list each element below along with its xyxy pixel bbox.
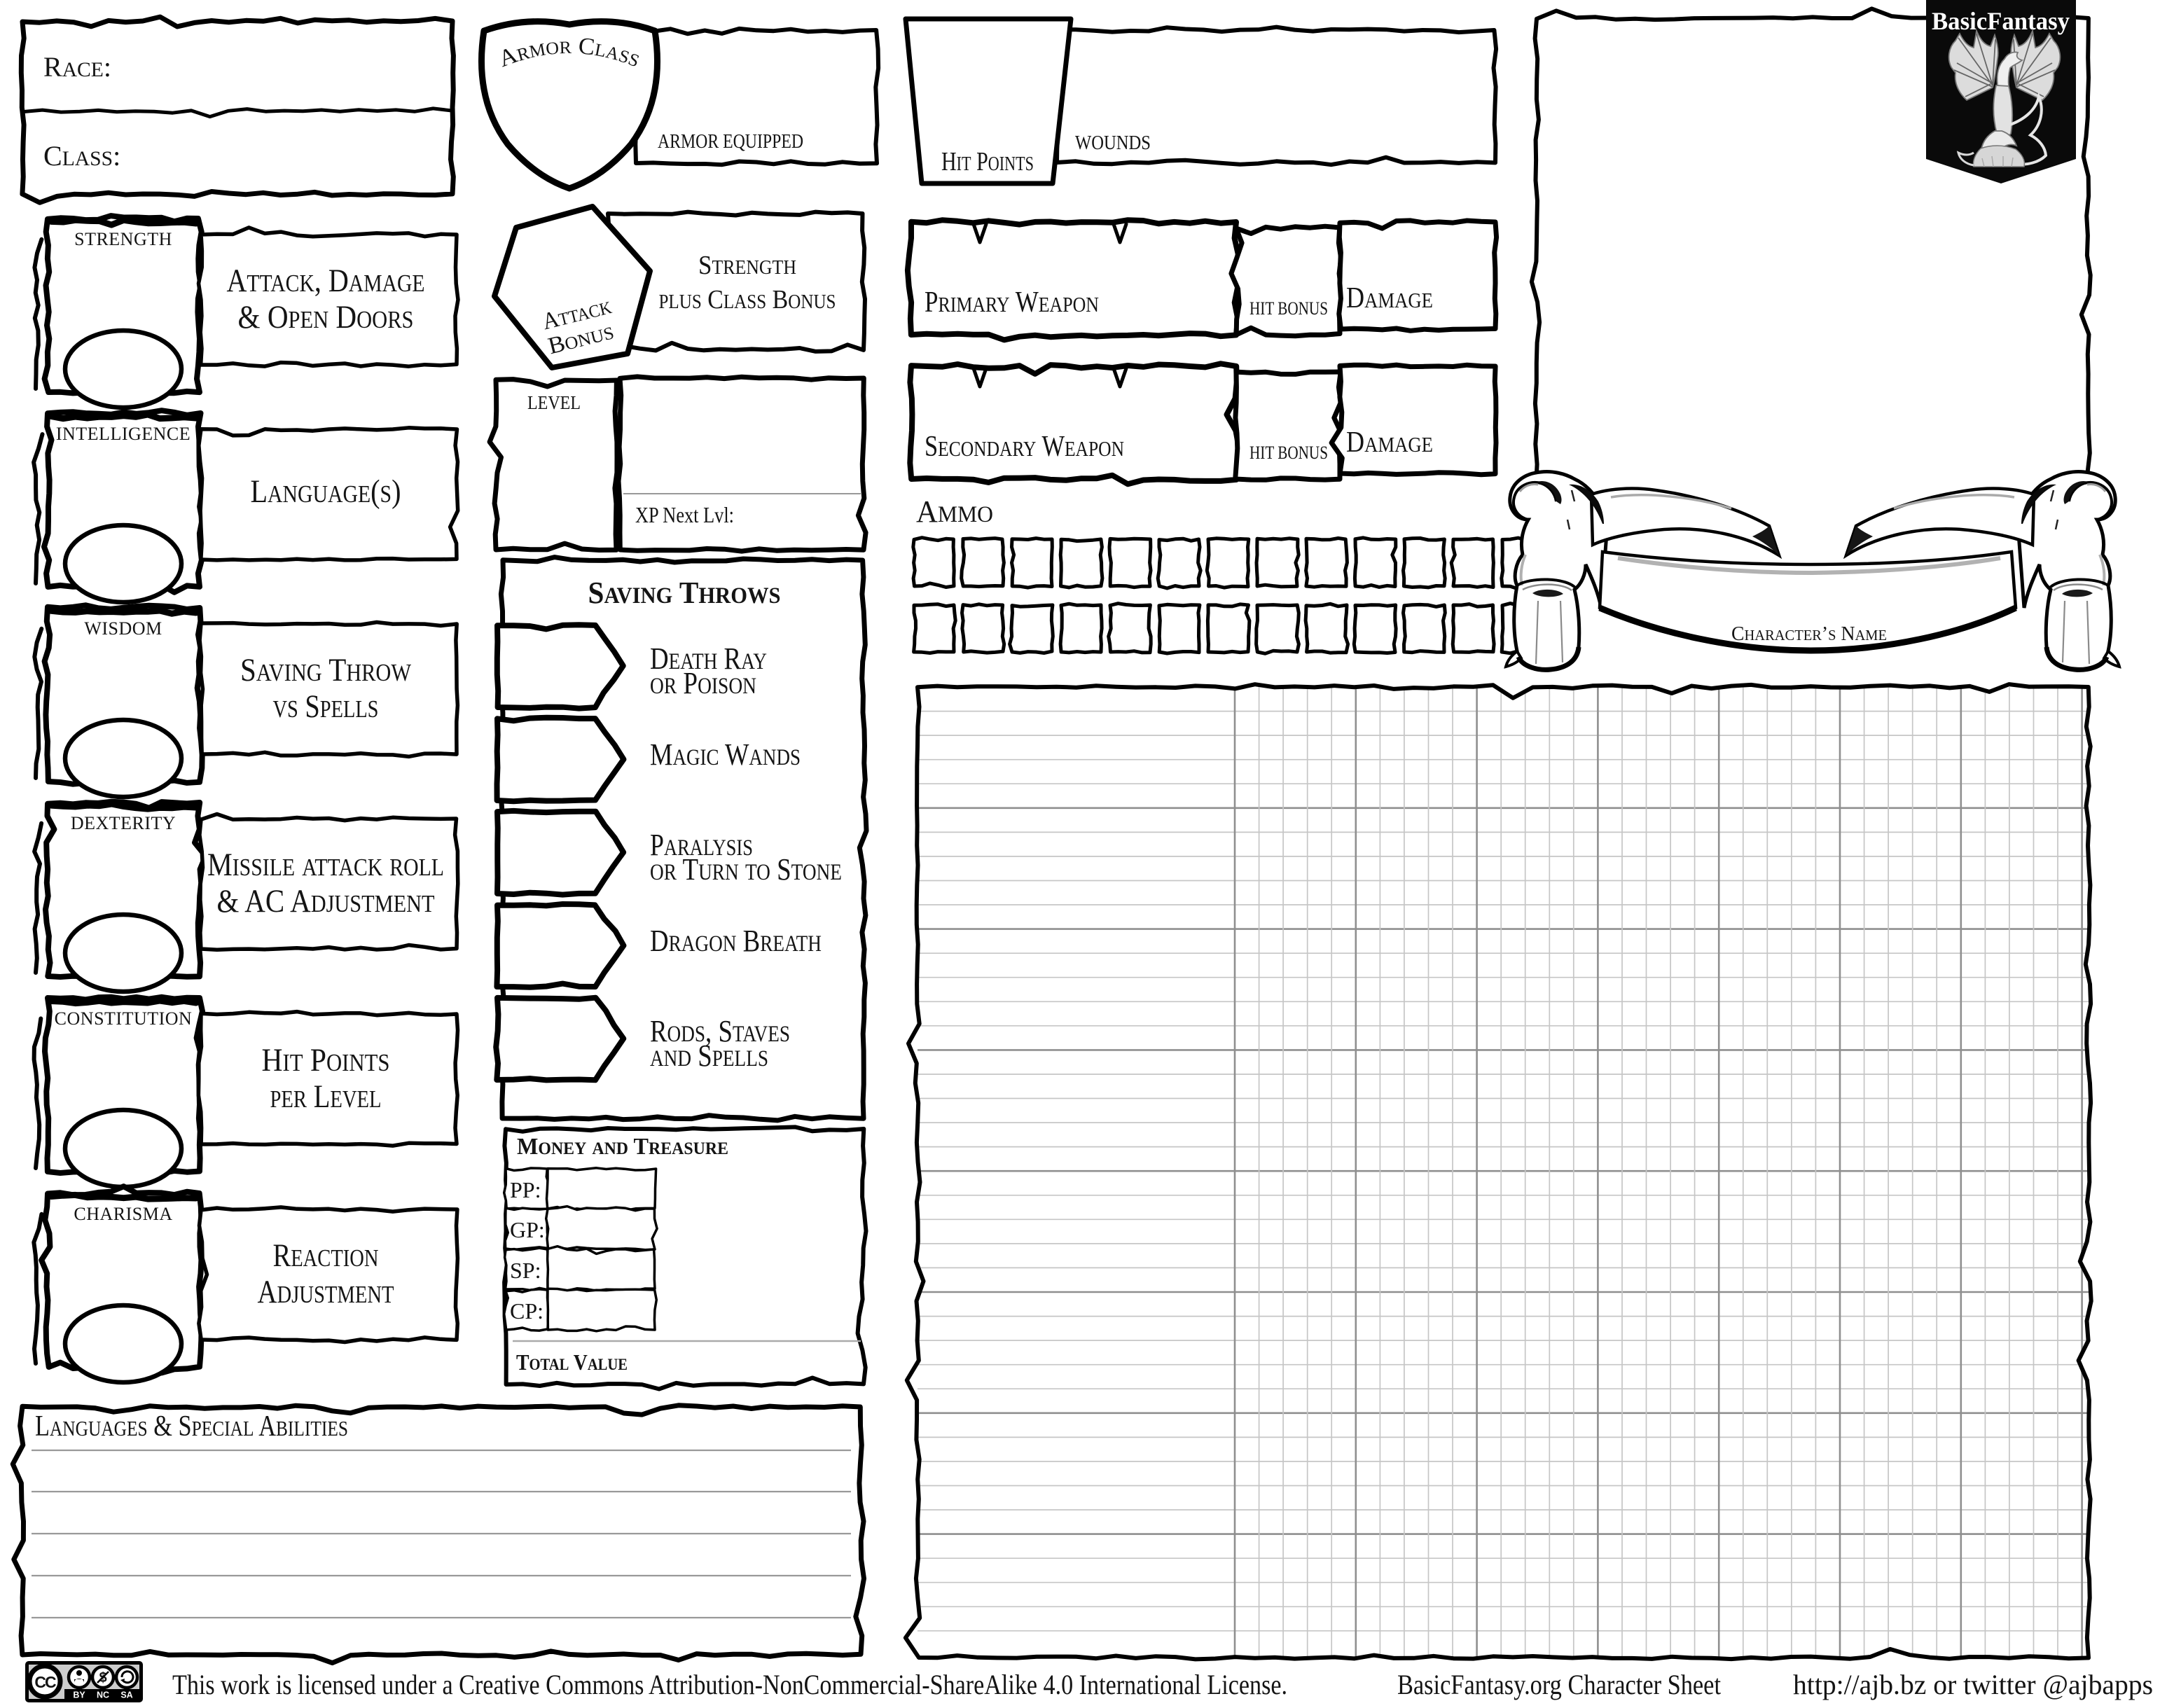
svg-text:XP Next Lvl:: XP Next Lvl: — [635, 502, 734, 527]
svg-text:CC: CC — [34, 1673, 56, 1691]
svg-text:PP:: PP: — [510, 1177, 541, 1202]
svg-text:LEVEL: LEVEL — [527, 392, 581, 413]
svg-text:BasicFantasy.org Character She: BasicFantasy.org Character Sheet — [1397, 1669, 1721, 1700]
svg-text:SP:: SP: — [510, 1258, 541, 1283]
svg-text:SA: SA — [120, 1690, 132, 1700]
svg-text:DEXTERITY: DEXTERITY — [71, 813, 176, 833]
svg-text:GP:: GP: — [510, 1217, 545, 1242]
svg-text:WOUNDS: WOUNDS — [1075, 132, 1151, 154]
svg-text:HIT BONUS: HIT BONUS — [1249, 443, 1328, 463]
svg-text:CP:: CP: — [510, 1298, 544, 1324]
svg-text:ARMOR EQUIPPED: ARMOR EQUIPPED — [658, 130, 803, 153]
svg-text:This work is licensed under a: This work is licensed under a Creative C… — [172, 1669, 1287, 1700]
svg-text:INTELLIGENCE: INTELLIGENCE — [56, 424, 191, 444]
svg-text:STRENGTH: STRENGTH — [74, 229, 172, 249]
svg-text:BY: BY — [73, 1690, 85, 1700]
svg-text:HIT BONUS: HIT BONUS — [1249, 298, 1328, 319]
svg-text:NC: NC — [97, 1690, 109, 1700]
svg-text:BasicFantasy: BasicFantasy — [1932, 7, 2070, 35]
svg-text:http://ajb.bz or twitter @ajba: http://ajb.bz or twitter @ajbapps — [1793, 1669, 2153, 1700]
svg-text:CHARISMA: CHARISMA — [74, 1204, 172, 1224]
svg-text:WISDOM: WISDOM — [84, 618, 162, 639]
svg-text:CONSTITUTION: CONSTITUTION — [55, 1008, 193, 1029]
